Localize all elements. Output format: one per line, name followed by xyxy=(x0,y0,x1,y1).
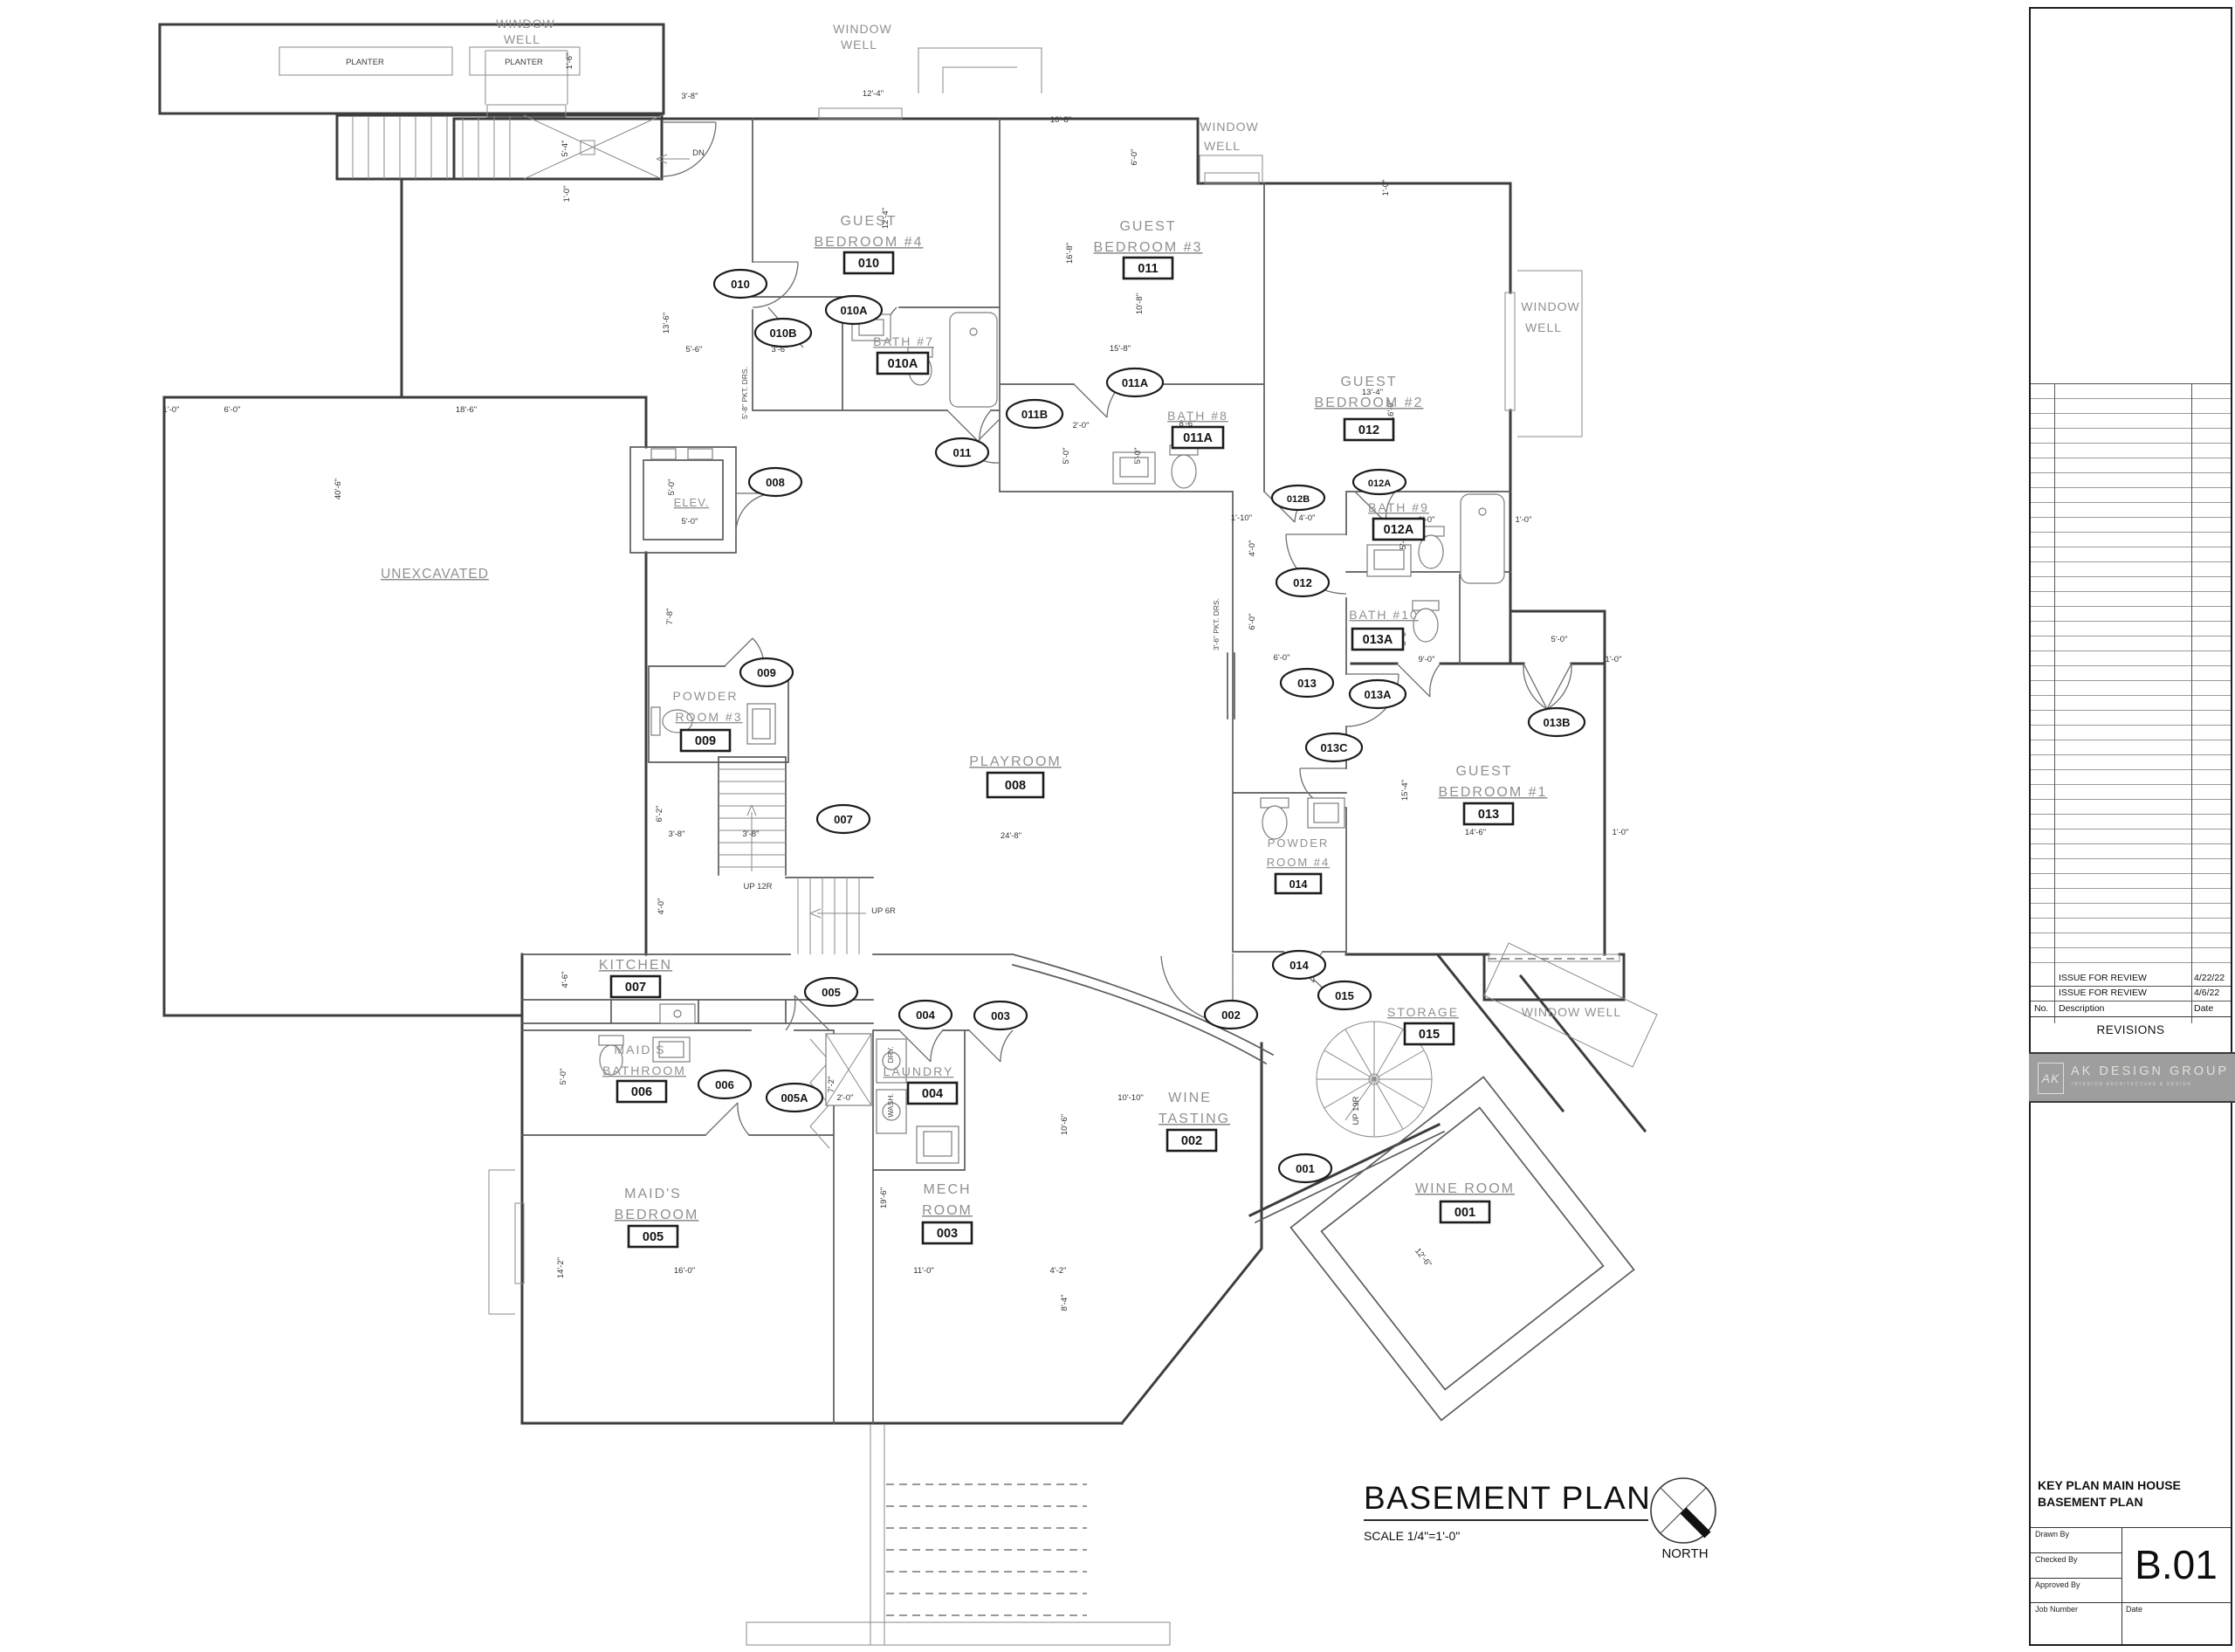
room-label-bath-7: BATH #7 xyxy=(873,334,934,348)
room-label-laundry: LAUNDRY xyxy=(884,1064,954,1078)
svg-text:TASTING: TASTING xyxy=(1159,1112,1230,1126)
door-tag: 011A xyxy=(1122,376,1149,389)
svg-text:14'-6": 14'-6" xyxy=(1465,828,1486,837)
room-tag-box: 003 xyxy=(937,1227,958,1241)
room-label-wine-tasting: WINE xyxy=(1168,1091,1212,1105)
svg-text:12'-6": 12'-6" xyxy=(1413,1247,1434,1270)
svg-text:15'-4": 15'-4" xyxy=(1400,780,1410,801)
logo-name: AK DESIGN GROUP xyxy=(2071,1064,2229,1078)
svg-text:7'-2": 7'-2" xyxy=(827,1077,836,1093)
up-6r-label: UP 6R xyxy=(871,906,896,916)
door-tag: 003 xyxy=(991,1009,1010,1022)
svg-text:BATHROOM: BATHROOM xyxy=(602,1063,686,1077)
svg-text:4'-0": 4'-0" xyxy=(657,898,666,915)
svg-text:BEDROOM #2: BEDROOM #2 xyxy=(1315,396,1424,410)
planter-label: PLANTER xyxy=(346,58,384,67)
door-tag: 013B xyxy=(1543,716,1570,729)
room-label-wine-room: WINE ROOM xyxy=(1415,1181,1515,1196)
north-label: NORTH xyxy=(1661,1546,1708,1561)
window-well-label: WINDOW WELL xyxy=(1522,1005,1621,1019)
door-tag: 013A xyxy=(1364,688,1392,701)
svg-text:BEDROOM #1: BEDROOM #1 xyxy=(1439,785,1548,800)
svg-text:5'-0": 5'-0" xyxy=(1133,448,1143,465)
logo-monogram: AK xyxy=(2038,1063,2064,1094)
door-tag: 007 xyxy=(834,813,853,826)
washer-label: WASH. xyxy=(886,1093,895,1118)
stair-arrows xyxy=(657,155,866,918)
dryer-label: DRY. xyxy=(886,1046,895,1063)
svg-text:10'-8": 10'-8" xyxy=(1050,115,1071,125)
svg-text:12'-4": 12'-4" xyxy=(863,89,884,99)
room-tag-box: 001 xyxy=(1454,1206,1475,1220)
scale-label: SCALE 1/4"=1'-0" xyxy=(1364,1529,1460,1543)
svg-text:24'-8": 24'-8" xyxy=(1001,831,1021,841)
revision-table-header: No. Description Date xyxy=(2031,1001,2231,1017)
door-tag: 005 xyxy=(822,986,841,999)
svg-text:1'-10": 1'-10" xyxy=(1231,513,1252,523)
door-tag: 010 xyxy=(731,278,750,291)
plan-title: BASEMENT PLAN SCALE 1/4"=1'-0" xyxy=(1364,1480,1651,1543)
svg-text:10'-8": 10'-8" xyxy=(1135,293,1145,314)
room-label-kitchen: KITCHEN xyxy=(599,958,672,973)
svg-text:9'-0": 9'-0" xyxy=(1419,655,1435,664)
svg-text:40'-6": 40'-6" xyxy=(334,478,343,499)
svg-text:5'-0": 5'-0" xyxy=(667,479,677,496)
svg-text:11'-0": 11'-0" xyxy=(913,1266,934,1276)
svg-text:3'-8": 3'-8" xyxy=(682,92,698,101)
svg-text:BEDROOM #4: BEDROOM #4 xyxy=(815,235,924,250)
room-label-bath-8: BATH #8 xyxy=(1167,409,1228,423)
title-block: ISSUE FOR REVIEW 4/22/22 ISSUE FOR REVIE… xyxy=(2029,7,2232,1646)
up-12r-label: UP 12R xyxy=(743,882,772,891)
svg-text:14'-2": 14'-2" xyxy=(556,1257,566,1278)
door-tag: 011 xyxy=(953,446,972,459)
door-tag: 010A xyxy=(840,304,868,317)
svg-text:5'-0": 5'-0" xyxy=(559,1069,568,1085)
room-tag-box: 010 xyxy=(858,257,879,271)
room-label-guest-bedroom-1: GUEST xyxy=(1455,764,1512,779)
room-tag-box: 005 xyxy=(643,1230,664,1244)
project-title: KEY PLAN MAIN HOUSE BASEMENT PLAN xyxy=(2038,1477,2181,1511)
svg-text:8'-4": 8'-4" xyxy=(1060,1295,1069,1311)
svg-text:WELL: WELL xyxy=(1525,320,1562,334)
svg-text:WELL: WELL xyxy=(1204,139,1241,153)
room-tag-box: 012 xyxy=(1358,423,1379,437)
approved-by-field: Approved By xyxy=(2035,1580,2080,1589)
svg-text:2'-0": 2'-0" xyxy=(837,1093,854,1103)
up-19r-label: UP 19R xyxy=(1351,1096,1361,1125)
unexcavated-label: UNEXCAVATED xyxy=(381,567,489,582)
svg-text:6'-2": 6'-2" xyxy=(655,806,664,823)
svg-text:10'-10": 10'-10" xyxy=(1117,1093,1143,1103)
svg-text:4'-0": 4'-0" xyxy=(1299,513,1316,523)
svg-text:1'-6": 1'-6" xyxy=(565,53,574,70)
svg-text:5'-6": 5'-6" xyxy=(686,345,703,354)
svg-text:5'-0": 5'-0" xyxy=(682,517,698,527)
revision-row: ISSUE FOR REVIEW 4/22/22 xyxy=(2031,971,2231,987)
svg-text:16'-0": 16'-0" xyxy=(674,1266,695,1276)
door-tag: 014 xyxy=(1289,959,1309,972)
elevator-label: ELEV. xyxy=(674,496,710,509)
svg-text:18'-6": 18'-6" xyxy=(456,405,477,415)
wine-room-walls xyxy=(1290,1077,1633,1420)
room-label-mech-room: MECH xyxy=(923,1182,971,1197)
room-tag-box: 012A xyxy=(1384,523,1414,537)
svg-text:1'-0": 1'-0" xyxy=(163,405,180,415)
window-well-label: WINDOW xyxy=(833,22,891,36)
window-well-label: WINDOW xyxy=(1521,299,1579,313)
window-well-label: WINDOW xyxy=(496,17,554,31)
svg-text:1'-0": 1'-0" xyxy=(1613,828,1629,837)
svg-text:19'-6": 19'-6" xyxy=(879,1187,889,1208)
svg-text:6'-0": 6'-0" xyxy=(1248,614,1257,630)
svg-text:1'-0": 1'-0" xyxy=(1606,655,1622,664)
floor-plan-svg: 3'-8" 12'-4" 10'-8" 6'-0" 1'-0" 13'-4" 1… xyxy=(0,0,2235,1652)
door-tag: 013C xyxy=(1320,741,1348,754)
sheet-number: B.01 xyxy=(2122,1527,2231,1602)
revision-table-empty-rows xyxy=(2031,383,2231,972)
page-title: BASEMENT PLAN xyxy=(1364,1480,1651,1516)
drawn-by-field: Drawn By xyxy=(2035,1530,2069,1538)
room-tag-box: 014 xyxy=(1289,878,1308,891)
door-tag: 005A xyxy=(781,1091,808,1105)
door-tag: 011B xyxy=(1021,408,1048,421)
svg-text:1'-0": 1'-0" xyxy=(1516,515,1532,525)
room-tag-box: 007 xyxy=(625,981,646,995)
room-label-guest-bedroom-4: GUEST xyxy=(840,214,897,229)
svg-text:6'-0": 6'-0" xyxy=(1274,653,1290,663)
svg-text:4'-0": 4'-0" xyxy=(1248,540,1257,557)
north-arrow: NORTH xyxy=(1651,1478,1716,1561)
room-label-playroom: PLAYROOM xyxy=(969,754,1062,769)
door-tag: 010B xyxy=(769,327,796,340)
svg-text:ROOM #3: ROOM #3 xyxy=(675,710,742,724)
planter-label: PLANTER xyxy=(505,58,543,67)
svg-text:WELL: WELL xyxy=(504,32,540,46)
svg-text:BEDROOM: BEDROOM xyxy=(615,1208,699,1222)
checked-by-field: Checked By xyxy=(2035,1555,2078,1564)
room-tag-box: 008 xyxy=(1005,779,1026,793)
window-well-label: WINDOW xyxy=(1200,120,1258,134)
room-label-maids-bedroom: MAID'S xyxy=(624,1187,682,1201)
svg-text:2'-0": 2'-0" xyxy=(1073,421,1090,430)
window-wells xyxy=(485,48,1620,1314)
room-label-bath-9: BATH #9 xyxy=(1368,500,1429,514)
logo-band: AK AK DESIGN GROUP INTERIOR ARCHITECTURE… xyxy=(2029,1052,2235,1103)
room-tag-box: 011A xyxy=(1183,431,1213,445)
door-tag: 008 xyxy=(766,476,785,489)
logo-tagline: INTERIOR ARCHITECTURE & DESIGN xyxy=(2072,1082,2191,1087)
room-tag-box: 011 xyxy=(1138,262,1158,276)
room-tag-box: 010A xyxy=(888,357,918,371)
room-label-maids-bathroom: MAID'S xyxy=(614,1043,665,1057)
svg-text:1'-0": 1'-0" xyxy=(1381,180,1391,196)
room-label-powder-room-4: POWDER xyxy=(1268,836,1330,850)
door-tag: 012 xyxy=(1293,576,1312,589)
drawing-sheet: 3'-8" 12'-4" 10'-8" 6'-0" 1'-0" 13'-4" 1… xyxy=(0,0,2235,1652)
door-tag: 012B xyxy=(1287,494,1310,505)
svg-text:WELL: WELL xyxy=(841,38,877,52)
svg-text:7'-8": 7'-8" xyxy=(665,609,675,625)
dn-label: DN xyxy=(692,148,705,158)
svg-text:4'-6": 4'-6" xyxy=(560,972,570,988)
svg-text:6'-0": 6'-0" xyxy=(1130,149,1139,166)
room-label-guest-bedroom-2: GUEST xyxy=(1340,375,1397,389)
door-tag: 012A xyxy=(1368,478,1391,489)
revision-row: ISSUE FOR REVIEW 4/6/22 xyxy=(2031,986,2231,1002)
svg-text:15'-8": 15'-8" xyxy=(1110,344,1131,354)
svg-text:4'-2": 4'-2" xyxy=(1050,1266,1067,1276)
room-tag-box: 013A xyxy=(1363,633,1393,647)
svg-text:5'-0": 5'-0" xyxy=(1062,448,1071,465)
door-tag: 001 xyxy=(1296,1162,1315,1175)
room-tag-box: 004 xyxy=(922,1087,943,1101)
room-tag-box: 015 xyxy=(1419,1028,1440,1042)
revisions-title: REVISIONS xyxy=(2031,1023,2231,1036)
room-label-storage: STORAGE xyxy=(1387,1005,1459,1019)
room-tag-box: 006 xyxy=(631,1085,652,1099)
room-label-guest-bedroom-3: GUEST xyxy=(1119,219,1176,234)
door-tag: 013 xyxy=(1297,677,1317,690)
svg-text:16'-8": 16'-8" xyxy=(1065,243,1075,264)
room-label-bath-10: BATH #10 xyxy=(1349,608,1419,622)
door-tag: 009 xyxy=(757,666,776,679)
door-tag: 002 xyxy=(1221,1008,1241,1022)
revision-col-divider xyxy=(2054,383,2055,1023)
svg-text:13'-6": 13'-6" xyxy=(662,313,671,334)
room-label-powder-room-3: POWDER xyxy=(673,689,739,703)
svg-text:6'-0": 6'-0" xyxy=(224,405,241,415)
pocket-door-note: 5'-8" PKT. DRS. xyxy=(740,367,749,419)
revision-col-divider xyxy=(2191,383,2192,1023)
room-tag-box: 013 xyxy=(1478,808,1499,822)
door-tag: 004 xyxy=(916,1008,935,1022)
svg-text:1'-0": 1'-0" xyxy=(562,186,572,203)
svg-text:BEDROOM #3: BEDROOM #3 xyxy=(1094,240,1203,255)
door-tag: 015 xyxy=(1335,989,1354,1002)
room-tag-box: 002 xyxy=(1181,1134,1202,1148)
door-tag: 006 xyxy=(715,1078,734,1091)
room-tag-box: 009 xyxy=(695,734,716,748)
job-number-field: Job Number xyxy=(2035,1605,2078,1614)
svg-text:5'-4": 5'-4" xyxy=(560,141,570,157)
svg-text:3'-8": 3'-8" xyxy=(743,829,760,839)
pocket-door-note: 3'-6" PKT. DRS. xyxy=(1212,598,1221,650)
svg-text:10'-6": 10'-6" xyxy=(1060,1114,1069,1135)
date-field: Date xyxy=(2126,1605,2142,1614)
svg-text:3'-8": 3'-8" xyxy=(669,829,685,839)
svg-text:5'-0": 5'-0" xyxy=(1551,635,1568,644)
svg-text:ROOM #4: ROOM #4 xyxy=(1267,856,1331,869)
svg-text:ROOM: ROOM xyxy=(922,1203,973,1218)
